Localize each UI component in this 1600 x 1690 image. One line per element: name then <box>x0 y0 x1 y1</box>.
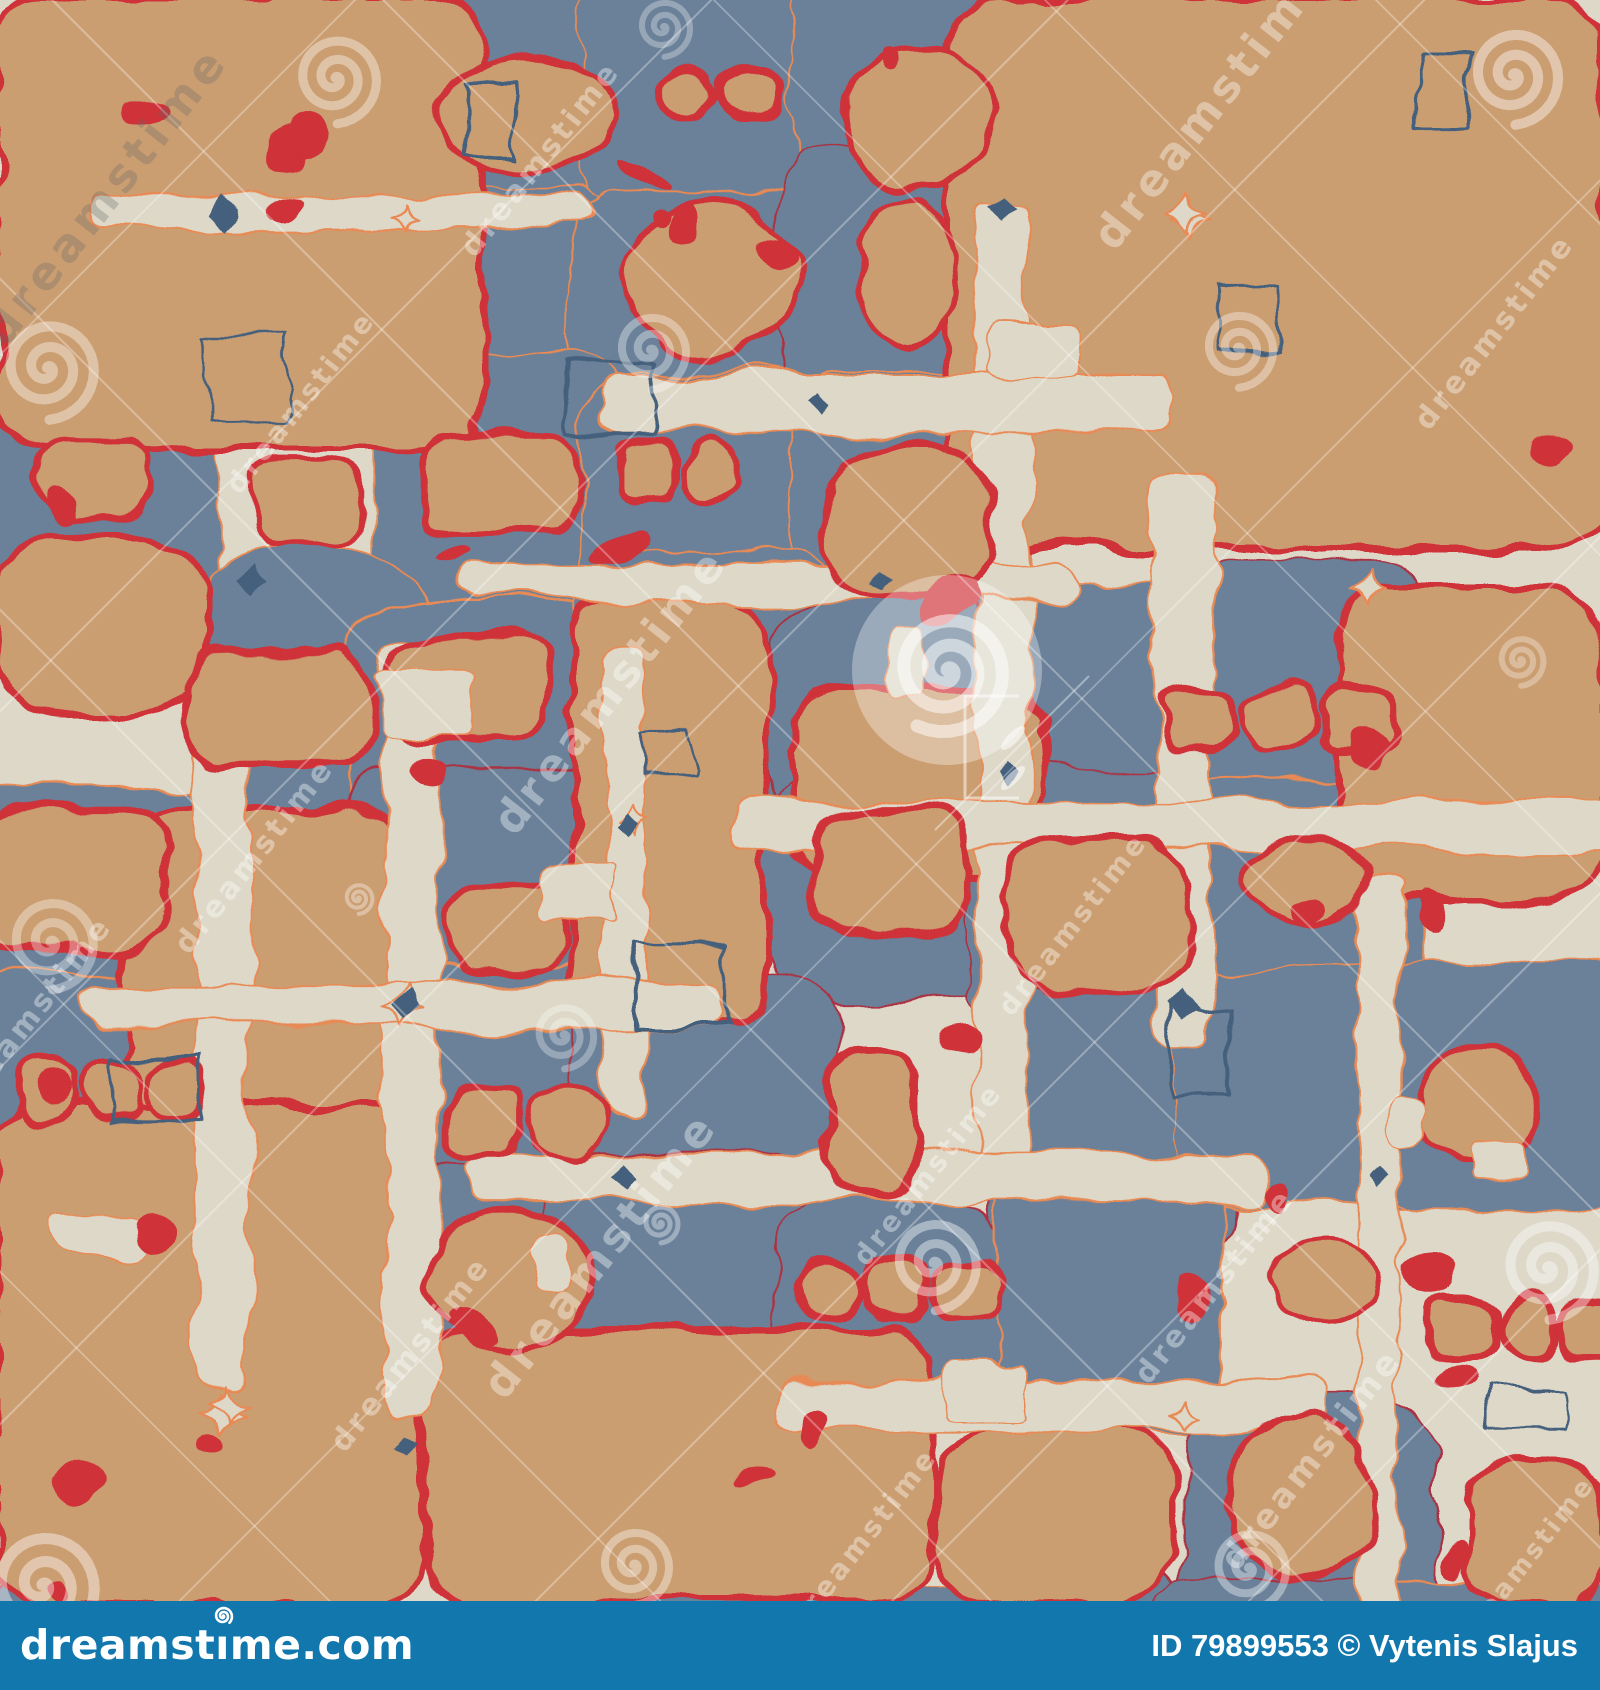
logo-letter-i: ı <box>215 1625 230 1666</box>
dreamstime-spiral-icon <box>211 1604 235 1628</box>
abstract-pattern-artwork: dreamstimedreamstimedreamstimedreamstime… <box>0 0 1600 1601</box>
image-credit-text: ID 79899553 © Vytenis Slajus <box>1151 1628 1578 1664</box>
logo-text-left: dreamst <box>20 1621 215 1669</box>
dreamstime-logo: dreamstıme.com <box>20 1625 414 1666</box>
pattern-image <box>0 0 1600 1601</box>
stock-image-preview: dreamstimedreamstimedreamstimedreamstime… <box>0 0 1600 1690</box>
logo-text-right: me.com <box>230 1621 414 1669</box>
watermark-footer-bar: dreamstıme.com ID 79899553 © Vytenis Sla… <box>0 1601 1600 1690</box>
